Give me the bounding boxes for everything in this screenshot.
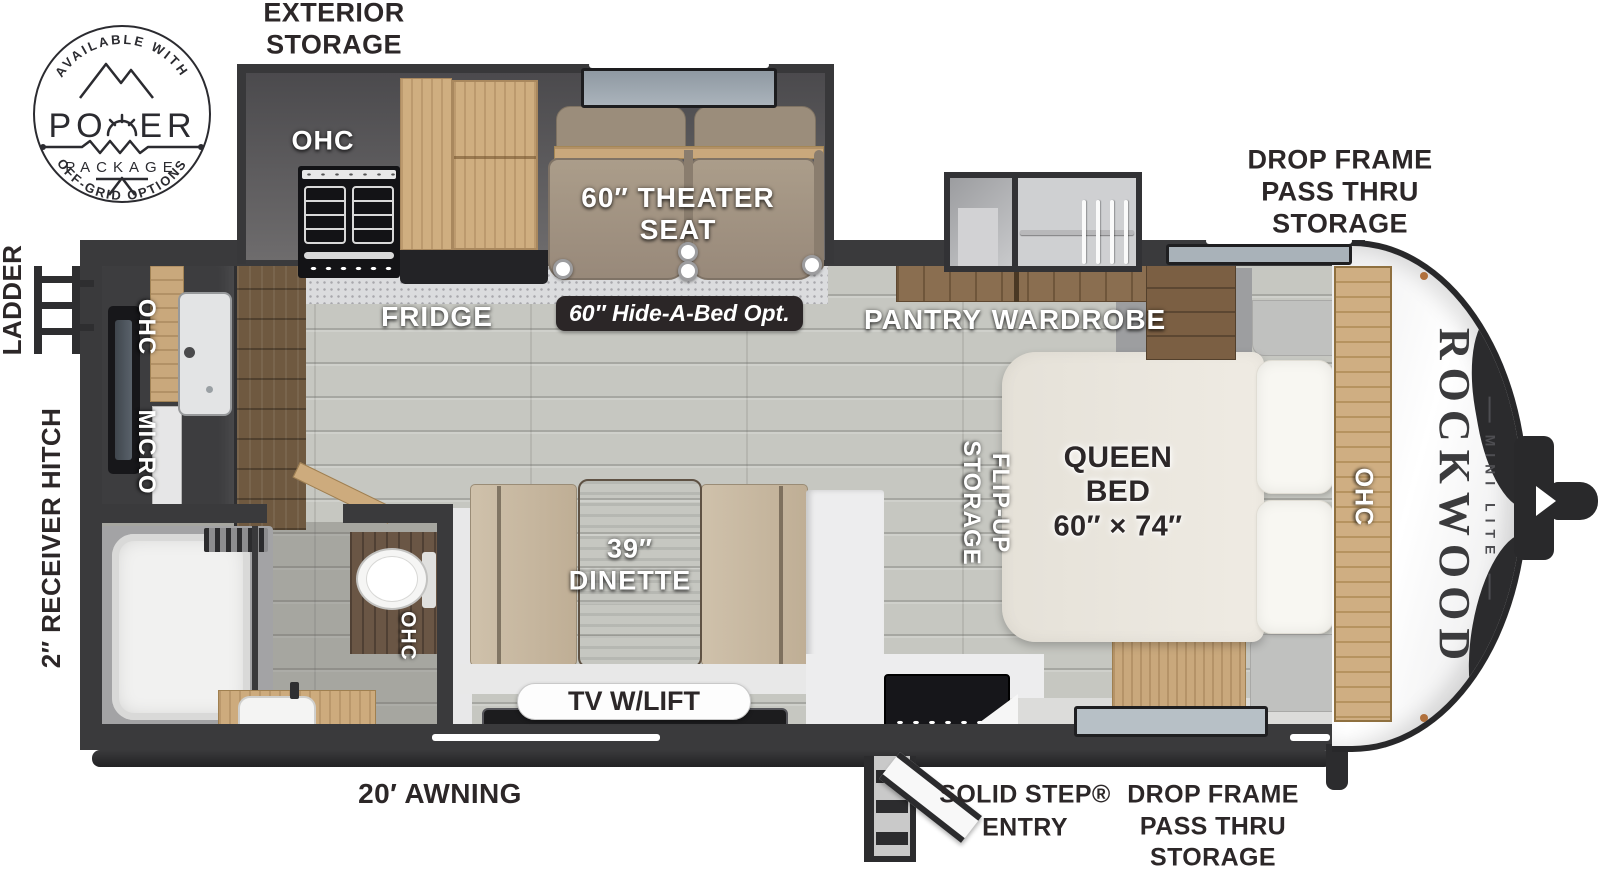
label-dinette-line1: 39″: [607, 534, 653, 563]
dinette-bench-left-seam: [497, 486, 501, 664]
shower-door-track: [204, 528, 268, 552]
label-drop-frame-top-line1: DROP FRAME: [1247, 145, 1432, 174]
brand-model: MINI LITE: [1482, 397, 1497, 600]
nightstand-bottom: [1250, 634, 1334, 712]
hanger-1: [1082, 200, 1086, 264]
label-queen-line2: BED: [1086, 476, 1151, 508]
pillow-top: [1256, 360, 1334, 494]
dinette-bench-right-seam: [779, 486, 783, 664]
step-tread-2: [876, 800, 908, 813]
label-theater-line2: SEAT: [640, 215, 717, 245]
logo-package: PACKAGE: [65, 159, 178, 176]
label-drop-frame-top-line2: PASS THRU: [1261, 177, 1419, 206]
wardrobe-divider: [1012, 178, 1018, 266]
tv-lift-badge: TV W/LIFT: [517, 683, 751, 720]
logo-power-left: PO: [48, 107, 107, 145]
svg-text:AVAILABLE WITH: AVAILABLE WITH: [52, 32, 192, 80]
cap-rivet-top: [1420, 272, 1428, 280]
label-drop-frame-top-line3: STORAGE: [1272, 209, 1408, 238]
label-drop-frame-bottom-line1: DROP FRAME: [1127, 782, 1299, 809]
hanger-2: [1096, 200, 1100, 264]
mountains-icon: [80, 64, 153, 98]
model-rule-left: [1489, 397, 1491, 423]
cupholder-3: [678, 261, 698, 281]
label-ladder: LADDER: [0, 245, 26, 356]
bed-window-top: [1166, 244, 1352, 265]
dinette-bench-left: [470, 484, 577, 666]
wardrobe-rod: [1020, 230, 1134, 235]
logo-power-right: ER: [139, 107, 196, 145]
wardrobe-box: [944, 172, 1142, 272]
label-flip-up-storage: FLIP-UP STORAGE: [957, 440, 1015, 565]
label-flip-up-line2: STORAGE: [957, 440, 986, 565]
pantry-cabinet-tall: [234, 258, 306, 530]
label-awning: 20′ AWNING: [358, 779, 522, 809]
ladder-icon: [28, 262, 96, 358]
bed-foot-chest: [1112, 634, 1246, 712]
label-bath-ohc: OHC: [396, 611, 419, 661]
awning-roll: [92, 750, 1332, 767]
dinette-bench-right: [701, 484, 808, 666]
slide-window: [581, 68, 777, 108]
tv-lift-text: TV W/LIFT: [568, 686, 700, 716]
floorplan-diagram: ROCKWOOD MINI LITE: [0, 0, 1600, 869]
hanger-3: [1110, 200, 1114, 264]
label-flip-up-line1: FLIP-UP: [986, 440, 1015, 565]
bath-wall-left: [80, 504, 267, 523]
model-text: MINI LITE: [1482, 435, 1497, 562]
label-galley-ohc: OHC: [292, 126, 355, 155]
nightstand-top: [1252, 300, 1334, 356]
label-dinette-line2: DINETTE: [569, 566, 692, 595]
brand-logo: ROCKWOOD: [1430, 328, 1478, 668]
label-kitchen-ohc: OHC: [133, 299, 159, 355]
range-knobs: [306, 264, 392, 273]
hitch-tongue: [1550, 482, 1598, 520]
label-drop-frame-bottom-line2: PASS THRU: [1140, 814, 1286, 841]
sink-drain: [206, 386, 213, 393]
hanger-4: [1124, 200, 1128, 264]
microwave-glass: [115, 320, 132, 460]
cap-rivet-bottom: [1420, 714, 1428, 722]
cupholder-4: [802, 255, 822, 275]
logo-arc-top-text: AVAILABLE WITH: [52, 32, 192, 80]
label-theater-line1: 60″ THEATER: [581, 183, 774, 213]
bath-faucet: [290, 682, 299, 699]
label-exterior-storage-line2: STORAGE: [266, 30, 402, 59]
model-rule-right: [1489, 573, 1491, 599]
step-tread-3: [876, 832, 908, 845]
power-package-logo: AVAILABLE WITH PO ER PACKAGE OFF-GRID OP…: [22, 14, 222, 214]
label-queen-line3: 60″ × 74″: [1054, 511, 1183, 542]
cupholder-1: [553, 259, 573, 279]
label-fridge: FRIDGE: [381, 302, 493, 332]
label-exterior-storage-line1: EXTERIOR: [263, 0, 404, 28]
label-queen-line1: QUEEN: [1064, 442, 1173, 474]
label-solid-step-line2: ENTRY: [982, 815, 1068, 842]
wardrobe-left-panel: [958, 208, 998, 266]
label-kitchen-micro: MICRO: [133, 410, 159, 495]
label-pantry: PANTRY: [864, 305, 982, 335]
label-receiver-hitch: 2″ RECEIVER HITCH: [37, 408, 65, 669]
label-solid-step-line1: SOLID STEP®: [939, 782, 1110, 809]
faucet: [184, 347, 195, 358]
label-drop-frame-bottom-line3: STORAGE: [1150, 845, 1276, 869]
sun-icon: [108, 115, 136, 135]
hide-a-bed-text: 60″ Hide-A-Bed Opt.: [569, 300, 790, 326]
bottom-wall-strip-right: [1290, 734, 1330, 741]
bed-window-bottom: [1074, 706, 1268, 737]
pillow-bottom: [1256, 500, 1334, 634]
bottom-wall-strip-left: [432, 734, 660, 741]
hide-a-bed-badge: 60″ Hide-A-Bed Opt.: [556, 296, 803, 331]
label-bed-ohc: OHC: [1350, 468, 1377, 527]
bath-divider-wall: [437, 504, 453, 748]
hitch-jack: [1536, 486, 1556, 516]
label-wardrobe: WARDROBE: [992, 305, 1166, 335]
toilet-seat: [366, 556, 418, 602]
